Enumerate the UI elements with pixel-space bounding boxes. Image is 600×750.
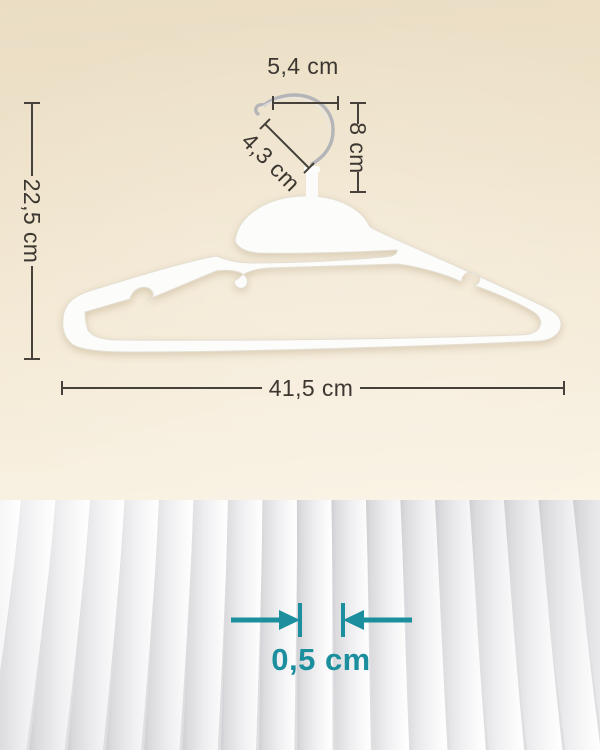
hook-opening-dimension: 4,3 cm xyxy=(237,119,314,196)
hook-width-dimension: 5,4 cm xyxy=(267,53,338,110)
hanger-body-shape xyxy=(63,196,561,352)
hanger-width-label: 41,5 cm xyxy=(269,375,354,401)
hanger-thickness-label: 0,5 cm xyxy=(271,642,371,677)
hanger-height-label: 22,5 cm xyxy=(19,179,45,264)
hanger-edge-band xyxy=(259,500,298,750)
hanger-height-dimension: 22,5 cm xyxy=(19,103,45,359)
product-dimension-infographic: 5,4 cm 8 cm 4,3 cm 22,5 cm 41,5 cm xyxy=(0,0,600,750)
hanger-diagram: 5,4 cm 8 cm 4,3 cm 22,5 cm 41,5 cm xyxy=(0,0,600,500)
hanger-graphic xyxy=(63,95,561,352)
hook-width-label: 5,4 cm xyxy=(267,53,338,79)
hanger-edge-band xyxy=(331,500,370,750)
hanger-diagram-panel: 5,4 cm 8 cm 4,3 cm 22,5 cm 41,5 cm xyxy=(0,0,600,500)
hook-height-dimension: 8 cm xyxy=(345,103,371,192)
hanger-width-dimension: 41,5 cm xyxy=(62,375,564,401)
hanger-edge-band xyxy=(297,500,333,750)
stem xyxy=(306,170,318,202)
stacked-hangers-svg: 0,5 cm xyxy=(0,500,600,750)
hook-height-label: 8 cm xyxy=(345,122,371,173)
hook-opening-label: 4,3 cm xyxy=(237,128,306,197)
hanger-edge-band xyxy=(221,500,263,750)
stacked-hangers-photo: 0,5 cm xyxy=(0,500,600,750)
